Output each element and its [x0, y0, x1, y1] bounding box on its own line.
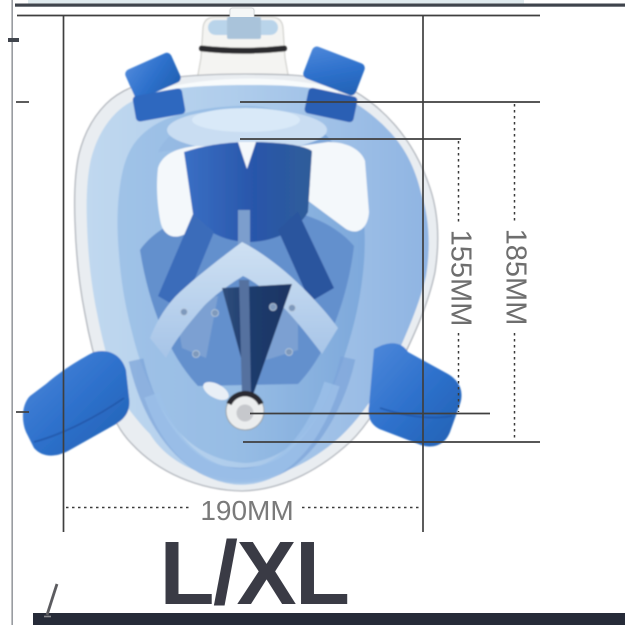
svg-text:190MM: 190MM: [200, 495, 293, 526]
svg-text:155MM: 155MM: [444, 230, 476, 327]
svg-text:L/XL: L/XL: [160, 524, 349, 624]
svg-text:185MM: 185MM: [499, 229, 531, 326]
